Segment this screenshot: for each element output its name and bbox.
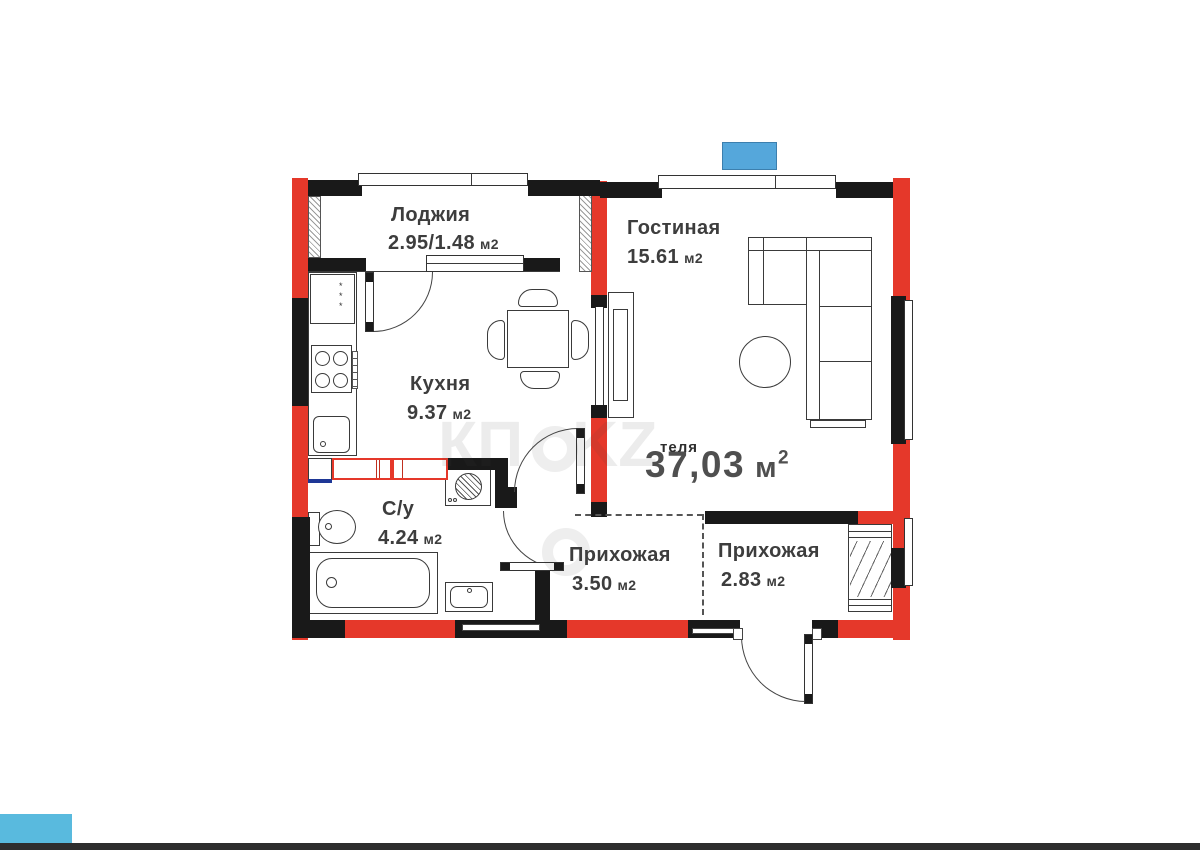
cabinet-divider xyxy=(402,460,406,478)
washing-machine-knob xyxy=(453,498,457,502)
sofa-foot xyxy=(810,420,866,428)
sofa-corner xyxy=(806,237,872,420)
window-divider xyxy=(775,176,776,188)
sofa-cushion-line xyxy=(819,361,871,362)
cabinet-blue-mark xyxy=(308,479,332,483)
sofa-cushion-line xyxy=(807,250,871,251)
room-name-kitchen: Кухня xyxy=(410,374,470,394)
area-unit: м2 xyxy=(453,406,472,422)
wardrobe xyxy=(848,524,892,612)
bath-sink-faucet xyxy=(467,588,472,593)
bathtub xyxy=(308,552,438,614)
burner xyxy=(315,351,330,366)
wall-hall2-top-red xyxy=(858,511,893,524)
dining-table xyxy=(507,310,569,368)
kitchen-sink xyxy=(313,416,350,453)
entry-jamb-right xyxy=(812,628,822,640)
bath-sink xyxy=(445,582,493,612)
partition-thin-double xyxy=(595,307,604,405)
window-living-right xyxy=(904,300,913,440)
area-value: 9.37 xyxy=(407,402,448,424)
area-unit: м2 xyxy=(480,236,499,252)
window-living-top xyxy=(658,175,836,189)
room-area-loggia: 2.95/1.48м2 xyxy=(388,233,499,253)
zone-dash-vertical xyxy=(702,514,704,615)
wall-bottom-red-1 xyxy=(345,620,455,638)
entry-door-leaf xyxy=(804,634,813,704)
wardrobe-hatch xyxy=(850,541,891,597)
wardrobe-shelf-line xyxy=(849,531,891,532)
area-unit: м2 xyxy=(424,531,443,547)
entry-door-arc xyxy=(741,636,806,702)
chair-bottom xyxy=(520,371,560,389)
coffee-table xyxy=(739,336,791,388)
sink-drain xyxy=(320,441,326,447)
fridge: * * * xyxy=(310,274,355,324)
total-area-overlap-fragment: теля xyxy=(660,440,698,455)
loggia-door-arc xyxy=(373,272,433,332)
stove xyxy=(311,345,352,393)
room-area-hall-2: 2.83м2 xyxy=(721,570,785,590)
toilet-button xyxy=(325,523,332,530)
chair-left xyxy=(487,320,505,360)
area-unit: м2 xyxy=(767,573,786,589)
wall-hall2-top-black xyxy=(705,511,858,524)
tv-cabinet xyxy=(608,292,634,418)
zone-dash-horizontal xyxy=(575,514,703,516)
cabinet-red-1 xyxy=(332,458,392,480)
burner xyxy=(315,373,330,388)
window-loggia-kitchen xyxy=(426,255,524,272)
room-name-living: Гостиная xyxy=(627,218,721,238)
wall-bath-east xyxy=(535,563,550,620)
window-sill-line xyxy=(427,263,523,264)
room-area-living: 15.61м2 xyxy=(627,247,703,267)
stove-dials xyxy=(352,351,358,389)
total-sup: 2 xyxy=(778,448,790,469)
floorplan-canvas: * * * xyxy=(0,0,1200,850)
room-name-loggia: Лоджия xyxy=(391,205,470,225)
wardrobe-shelf-line xyxy=(849,537,891,538)
room-area-kitchen: 9.37м2 xyxy=(407,403,471,423)
entry-jamb-left xyxy=(733,628,743,640)
sofa-corner-line xyxy=(819,250,820,419)
blue-marker-top xyxy=(722,142,777,170)
wall-bottom-red-3 xyxy=(838,620,893,638)
loggia-door-leaf xyxy=(365,272,374,332)
area-value: 3.50 xyxy=(572,573,613,595)
window-divider xyxy=(471,174,472,185)
sofa-cushion-line xyxy=(819,306,871,307)
burner xyxy=(333,351,348,366)
wall-top-black-1 xyxy=(308,180,362,196)
room-area-hall-1: 3.50м2 xyxy=(572,574,636,594)
bathtub-drain xyxy=(326,577,337,588)
loggia-hatch-left xyxy=(308,196,321,258)
wardrobe-shelf-line xyxy=(849,605,891,606)
loggia-hatch-right xyxy=(579,195,592,272)
area-unit: м2 xyxy=(618,577,637,593)
wall-top-black-3 xyxy=(600,182,662,198)
tv-cabinet-inner xyxy=(613,309,628,401)
cabinet-white xyxy=(308,458,332,480)
blue-corner-bottom-left xyxy=(0,814,72,844)
window-hall-right xyxy=(904,518,913,586)
wall-top-black-4 xyxy=(836,182,893,198)
wall-loggia-divider-black-1 xyxy=(308,258,366,272)
bottom-edge-bar xyxy=(0,843,1200,850)
burner xyxy=(333,373,348,388)
wall-divider-upper-red xyxy=(591,181,607,295)
area-value: 15.61 xyxy=(627,246,679,268)
area-value: 2.95/1.48 xyxy=(388,232,475,254)
chair-right xyxy=(571,320,589,360)
room-area-bathroom: 4.24м2 xyxy=(378,528,442,548)
area-value: 4.24 xyxy=(378,527,419,549)
room-name-hall-2: Прихожая xyxy=(718,541,820,561)
sofa-armrest-line xyxy=(763,238,764,304)
fridge-stars: * * * xyxy=(339,281,351,311)
cabinet-divider xyxy=(376,460,380,478)
wardrobe-shelf-line xyxy=(849,599,891,600)
wall-left-black-1 xyxy=(292,298,308,406)
wall-face-line-1 xyxy=(462,624,540,631)
wall-bottom-black-1 xyxy=(292,620,345,638)
area-unit: м2 xyxy=(684,250,703,266)
wall-face-line-2 xyxy=(692,628,738,634)
wall-bottom-red-2 xyxy=(567,620,688,638)
area-value: 2.83 xyxy=(721,569,762,591)
wall-loggia-divider-black-2 xyxy=(524,258,560,272)
room-name-hall-1: Прихожая xyxy=(569,545,671,565)
wall-top-black-2 xyxy=(528,180,600,196)
total-unit: м xyxy=(755,452,778,484)
washing-machine-knob xyxy=(448,498,452,502)
room-name-bathroom: С/у xyxy=(382,499,414,519)
chair-top xyxy=(518,289,558,307)
toilet-bowl xyxy=(318,510,356,544)
window-loggia-top xyxy=(358,173,528,186)
